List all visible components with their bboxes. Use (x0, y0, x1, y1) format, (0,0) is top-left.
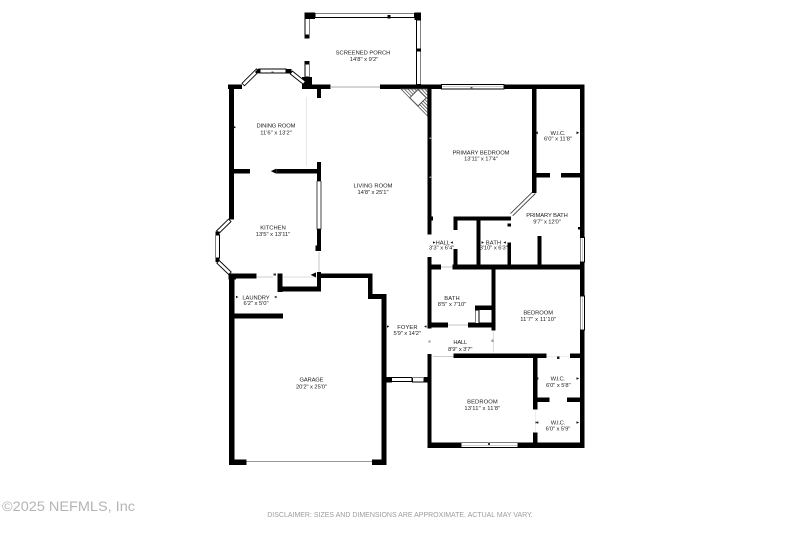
svg-text:13'5" x 13'11": 13'5" x 13'11" (256, 232, 291, 238)
svg-text:6'0" x 11'8": 6'0" x 11'8" (544, 136, 572, 142)
svg-text:8'9" x 3'7": 8'9" x 3'7" (448, 347, 472, 353)
svg-text:3'3" x 6'4": 3'3" x 6'4" (429, 246, 454, 252)
svg-text:13'11" x 17'4": 13'11" x 17'4" (464, 157, 498, 163)
svg-text:3'10" x 6'3": 3'10" x 6'3" (480, 246, 508, 252)
svg-text:13'11" x 11'8": 13'11" x 11'8" (464, 406, 500, 412)
svg-text:11'7" x 11'10": 11'7" x 11'10" (520, 317, 556, 323)
svg-text:5'9" x 14'2": 5'9" x 14'2" (394, 331, 421, 337)
svg-text:6'2" x 5'0": 6'2" x 5'0" (244, 301, 269, 307)
svg-text:KITCHEN: KITCHEN (260, 226, 286, 232)
svg-text:W.I.C.: W.I.C. (551, 377, 566, 383)
svg-text:SCREENED PORCH: SCREENED PORCH (336, 50, 391, 56)
svg-text:GARAGE: GARAGE (300, 378, 324, 384)
svg-text:20'2" x 25'0": 20'2" x 25'0" (296, 385, 327, 391)
svg-text:HALL: HALL (453, 340, 468, 346)
svg-text:14'8" x 25'1": 14'8" x 25'1" (358, 190, 389, 196)
svg-text:8'5" x 7'10": 8'5" x 7'10" (438, 302, 467, 308)
svg-text:BEDROOM: BEDROOM (467, 400, 498, 406)
svg-text:9'7" x 12'0": 9'7" x 12'0" (533, 220, 561, 226)
svg-text:©2025 NEFMLS, Inc: ©2025 NEFMLS, Inc (2, 499, 135, 514)
svg-text:PRIMARY BEDROOM: PRIMARY BEDROOM (453, 150, 510, 156)
svg-text:6'0" x 5'8": 6'0" x 5'8" (546, 383, 571, 389)
svg-text:BEDROOM: BEDROOM (523, 310, 553, 316)
svg-text:14'8" x 9'2": 14'8" x 9'2" (350, 57, 379, 63)
svg-text:11'6" x 13'2": 11'6" x 13'2" (260, 131, 292, 137)
svg-text:6'0" x 5'9": 6'0" x 5'9" (546, 427, 571, 433)
svg-text:DISCLAIMER: SIZES AND DIMENSIO: DISCLAIMER: SIZES AND DIMENSIONS ARE APP… (267, 512, 533, 519)
svg-text:PRIMARY BATH: PRIMARY BATH (526, 213, 568, 219)
svg-text:DINING ROOM: DINING ROOM (257, 124, 296, 130)
svg-text:LIVING ROOM: LIVING ROOM (354, 184, 393, 190)
